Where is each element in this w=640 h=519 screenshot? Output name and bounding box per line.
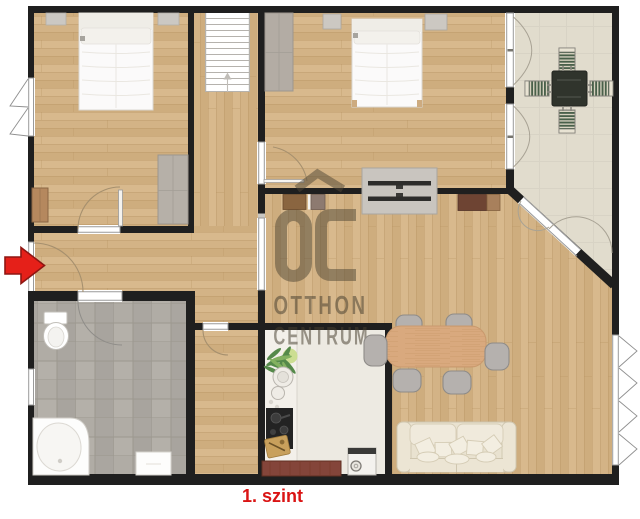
svg-text:CENTRUM: CENTRUM bbox=[273, 323, 369, 350]
svg-text:OTTHON: OTTHON bbox=[273, 290, 367, 320]
svg-text:1. szint: 1. szint bbox=[242, 486, 303, 506]
